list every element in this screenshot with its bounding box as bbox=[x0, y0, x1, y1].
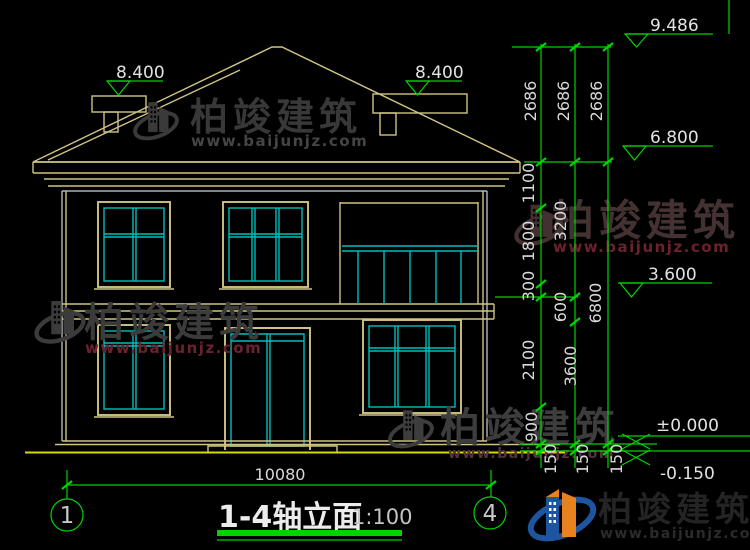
logo-brand-text: 柏竣建筑 bbox=[598, 490, 750, 530]
level-foundation: -0.150 bbox=[660, 464, 715, 484]
dim-a-2686: 2686 bbox=[521, 81, 540, 122]
drawing-scale: 1:100 bbox=[352, 505, 413, 529]
dim-a-1800: 1800 bbox=[519, 221, 538, 262]
axis-label-1: 1 bbox=[60, 503, 75, 529]
dim-b-600: 600 bbox=[551, 292, 570, 323]
dim-c-6800: 6800 bbox=[586, 283, 605, 324]
axis-bubble-right: 4 bbox=[474, 497, 506, 529]
logo-tower-orange bbox=[562, 492, 576, 537]
watermark-right: 柏竣建筑 www.baijunjz.com bbox=[513, 196, 740, 256]
watermark-url: www.baijunjz.com bbox=[85, 339, 262, 357]
cad-elevation-screenshot: 柏竣建筑 www.baijunjz.com 柏竣建筑 www.baijunjz.… bbox=[0, 0, 750, 550]
level-floor2: 3.600 bbox=[648, 265, 697, 285]
watermark-logo-icon bbox=[33, 301, 87, 347]
logo-roof bbox=[546, 489, 559, 497]
watermark-url: www.baijunjz.com bbox=[191, 132, 368, 150]
dim-a-900: 900 bbox=[522, 412, 541, 443]
door-step bbox=[208, 446, 337, 452]
title-block: 1-4轴立面 1:100 bbox=[217, 500, 413, 540]
dim-b-150: 150 bbox=[573, 444, 592, 475]
dim-a-1100: 1100 bbox=[519, 163, 538, 204]
watermark-left: 柏竣建筑 www.baijunjz.com bbox=[33, 300, 264, 357]
dim-bottom-width: 10080 bbox=[255, 465, 306, 484]
level-eave: 6.800 bbox=[650, 128, 699, 148]
watermark-logo-icon bbox=[132, 102, 181, 143]
axis-label-4: 4 bbox=[483, 501, 498, 527]
level-ground: ±0.000 bbox=[656, 416, 719, 436]
window-1f-right bbox=[363, 320, 461, 413]
balcony-railing bbox=[340, 202, 478, 304]
title-underline bbox=[217, 530, 402, 536]
dim-c-2686: 2686 bbox=[587, 81, 606, 122]
watermark-url: www.baijunjz.com bbox=[553, 238, 730, 256]
dim-b-3200: 3200 bbox=[551, 201, 570, 242]
dim-a-2100: 2100 bbox=[519, 340, 538, 381]
level-chimney-left: 8.400 bbox=[116, 63, 165, 83]
logo-tower-blue bbox=[546, 497, 559, 537]
baijun-logo: 柏竣建筑 www.baijunjz.com bbox=[525, 489, 750, 546]
level-ridge: 9.486 bbox=[650, 16, 699, 36]
dim-c-150: 150 bbox=[607, 444, 626, 475]
dim-a-300: 300 bbox=[519, 271, 538, 302]
axis-bubble-left: 1 bbox=[51, 499, 83, 531]
dim-b-2686: 2686 bbox=[554, 81, 573, 122]
window-2f-left bbox=[98, 202, 170, 287]
level-chimney-right: 8.400 bbox=[415, 63, 464, 83]
dim-b-3600: 3600 bbox=[561, 346, 580, 387]
elevation-drawing: 柏竣建筑 www.baijunjz.com 柏竣建筑 www.baijunjz.… bbox=[0, 0, 750, 550]
eave-fascia bbox=[33, 162, 520, 186]
dim-a-150: 150 bbox=[541, 444, 560, 475]
watermark-logo-icon bbox=[387, 410, 436, 451]
watermark-roof: 柏竣建筑 www.baijunjz.com bbox=[132, 95, 369, 150]
window-2f-middle bbox=[223, 202, 308, 287]
drawing-title: 1-4轴立面 bbox=[218, 500, 362, 535]
logo-url-text: www.baijunjz.com bbox=[600, 526, 750, 542]
